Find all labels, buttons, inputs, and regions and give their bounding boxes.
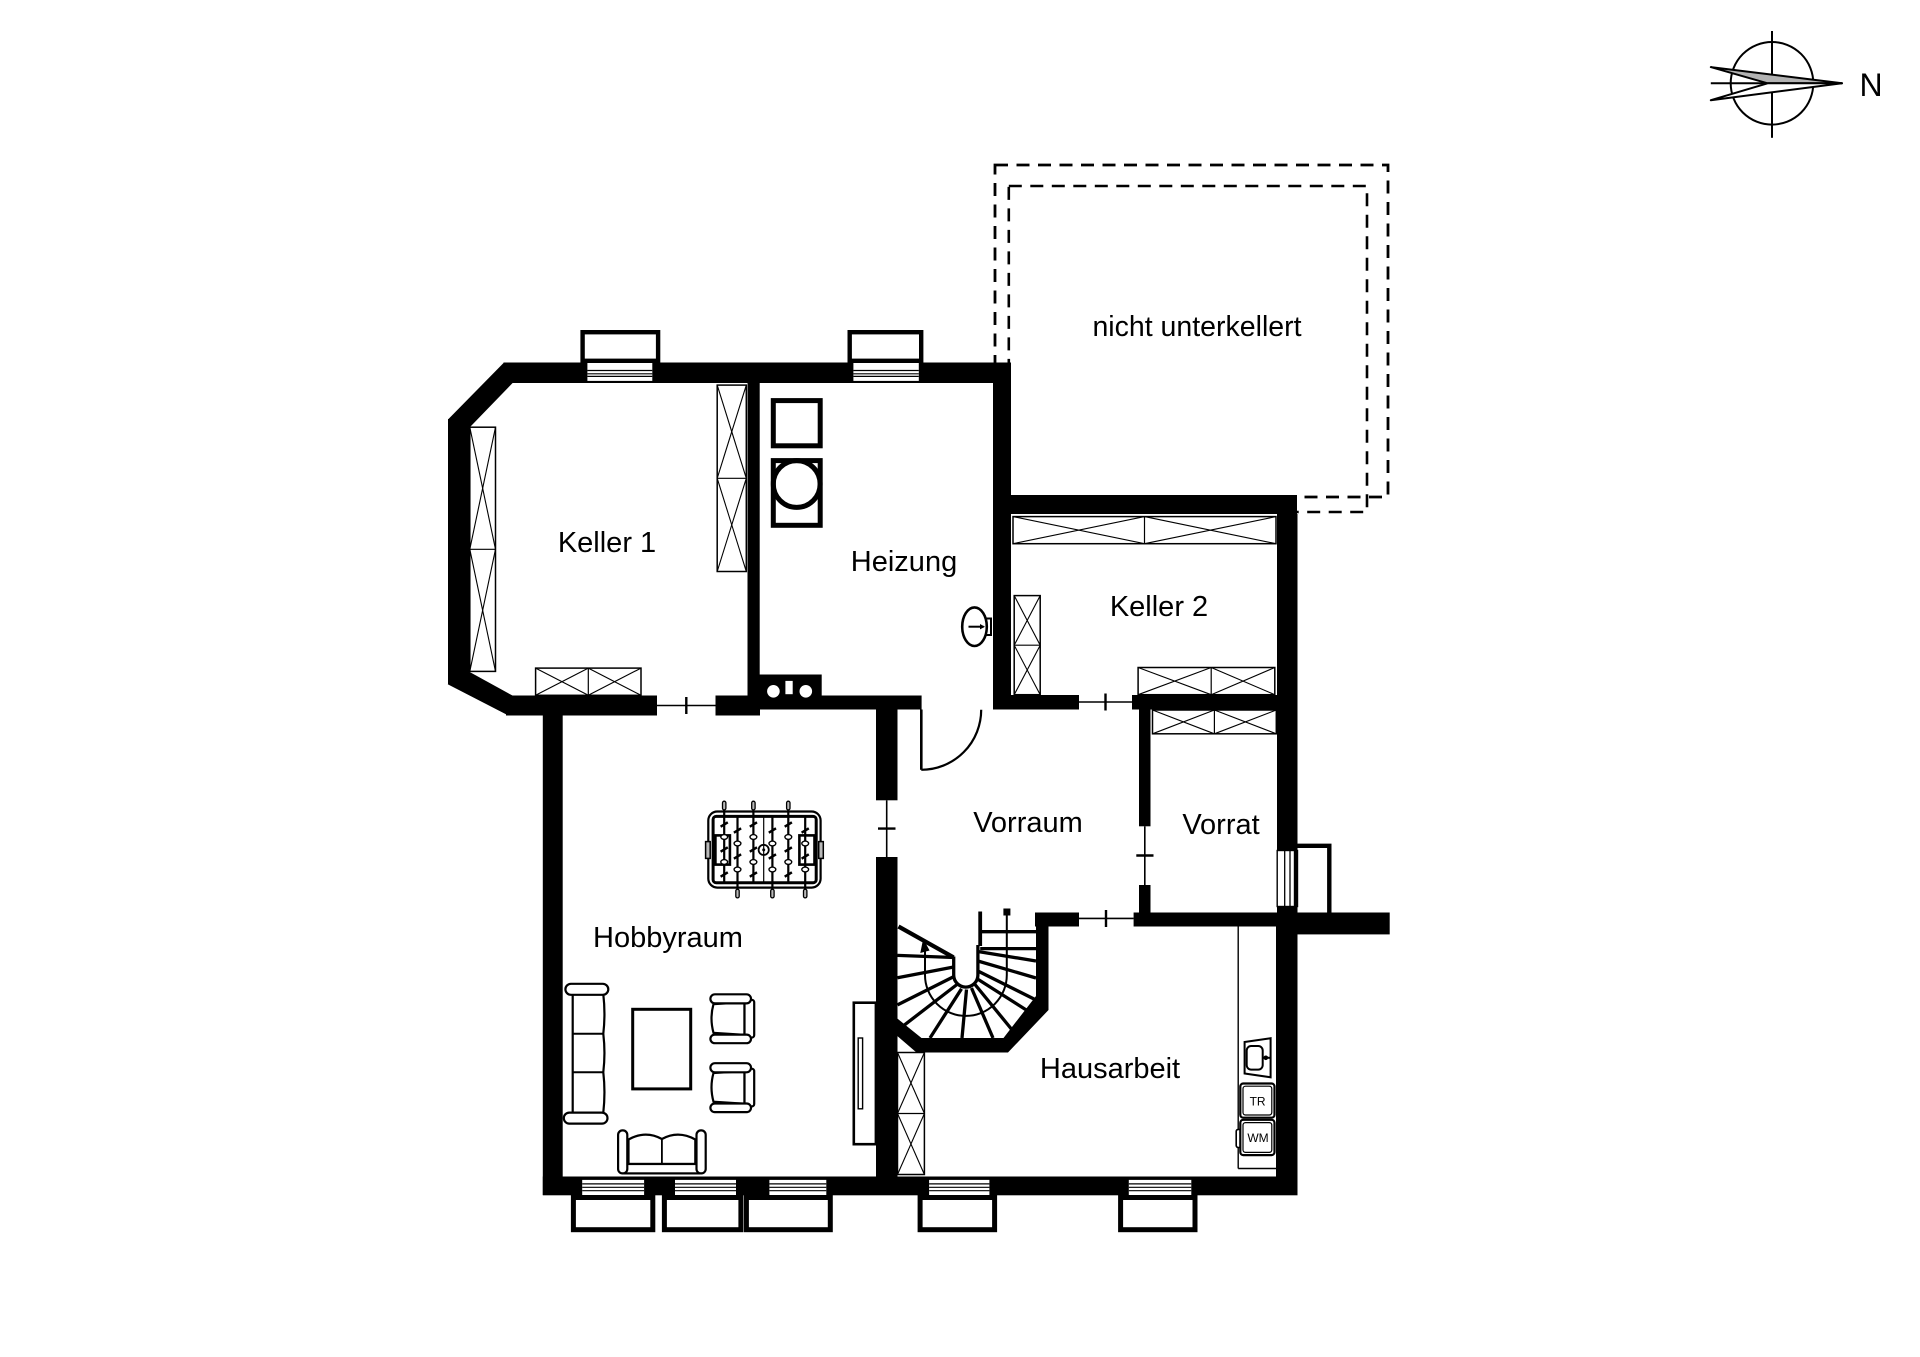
svg-text:Keller 1: Keller 1 [558, 527, 656, 559]
svg-text:N: N [1859, 67, 1882, 103]
svg-text:Keller 2: Keller 2 [1110, 591, 1208, 623]
svg-text:Hausarbeit: Hausarbeit [1040, 1053, 1180, 1085]
svg-text:nicht unterkellert: nicht unterkellert [1092, 311, 1301, 343]
svg-text:WM: WM [1247, 1131, 1268, 1145]
svg-text:Vorraum: Vorraum [973, 807, 1083, 839]
svg-text:TR: TR [1250, 1094, 1266, 1108]
svg-text:Heizung: Heizung [851, 546, 957, 578]
svg-text:Vorrat: Vorrat [1182, 809, 1259, 841]
svg-text:Hobbyraum: Hobbyraum [593, 922, 743, 954]
